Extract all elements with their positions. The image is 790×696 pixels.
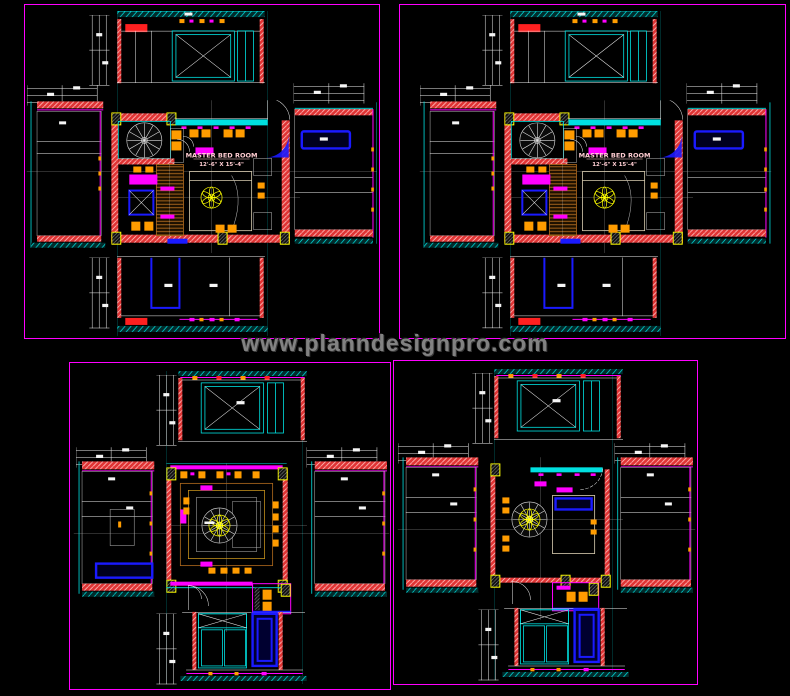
sheet-bottom-right [393,360,698,685]
room-label: MASTER BED ROOM [186,151,258,159]
watermark: www.planndesignpro.com [0,330,790,357]
sheet-top-right: MASTER BED ROOM 12'-6" X 15'-4" [399,4,786,339]
sheet-bottom-right-drawing [394,361,697,684]
sheet-bottom-left-drawing [70,363,390,689]
sheet-top-left-drawing: MASTER BED ROOM 12'-6" X 15'-4" [25,5,379,338]
room-size: 12'-6" X 15'-4" [199,162,244,168]
cad-canvas: MASTER BED ROOM 12'-6" X 15'-4" MASTER B… [0,0,790,696]
sheet-top-left: MASTER BED ROOM 12'-6" X 15'-4" [24,4,380,339]
drawing-views [74,371,389,684]
drawing-views [27,11,378,336]
room-label: MASTER BED ROOM [579,151,651,159]
room-size: 12'-6" X 15'-4" [592,162,637,168]
drawing-views [398,369,695,680]
sheet-top-right-drawing: MASTER BED ROOM 12'-6" X 15'-4" [400,5,785,338]
drawing-views [420,11,771,336]
sheet-bottom-left [69,362,391,690]
